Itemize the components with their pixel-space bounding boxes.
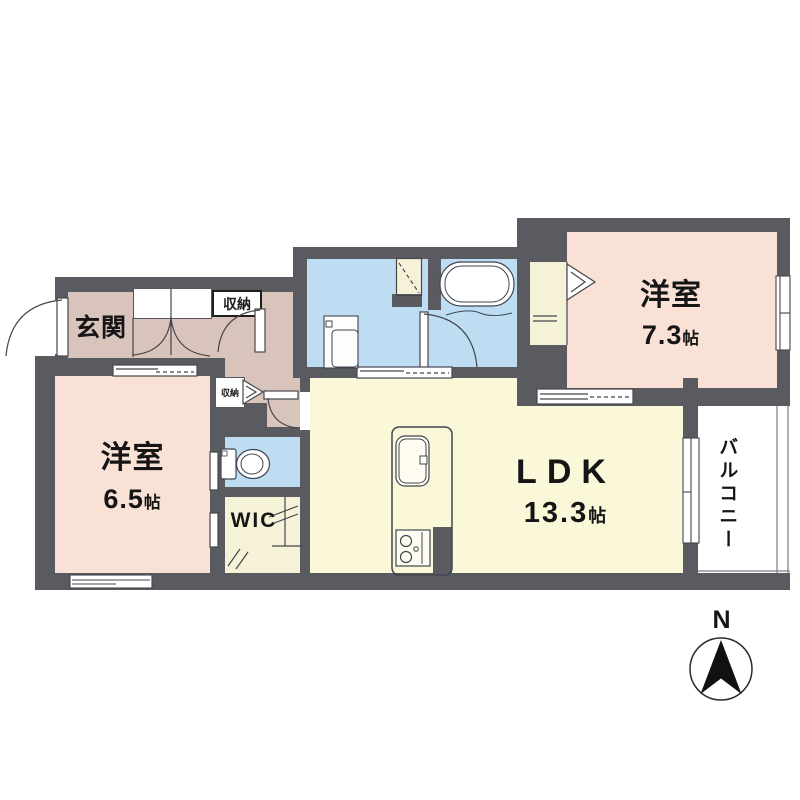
wic-label: WIC [225, 509, 283, 533]
balcony-label: バルコニー [716, 416, 737, 572]
room-size: 7.3帖 [565, 320, 777, 350]
floor-plan: 収納 収納 [0, 0, 800, 800]
compass-north-label: N [702, 606, 742, 634]
wall-segment [683, 378, 698, 578]
bedroom-right-label: 洋室 7.3帖 [565, 279, 777, 350]
room-name: LDK [486, 453, 646, 491]
room-name: 洋室 [55, 441, 210, 476]
room-name: 洋室 [565, 279, 777, 313]
wall-segment [293, 290, 307, 378]
floor-closet-bedroom-right [530, 260, 567, 345]
shoe-cabinet [133, 288, 212, 319]
floor-closet-bath [396, 258, 422, 296]
wall-segment [428, 258, 441, 310]
storage-entrance-box: 収納 [212, 290, 262, 317]
wall-segment [433, 527, 452, 575]
wall-segment [517, 388, 790, 406]
wall-segment [55, 277, 68, 300]
entrance-label: 玄関 [68, 314, 134, 342]
north-arrow-icon [690, 638, 752, 700]
storage-hall-box: 収納 [215, 377, 245, 408]
wall-segment [300, 378, 310, 573]
wall-segment [35, 573, 790, 590]
ldk-label: LDK 13.3帖 [486, 453, 646, 530]
wall-segment [35, 356, 55, 590]
room-size: 6.5帖 [55, 484, 210, 514]
room-size: 13.3帖 [486, 497, 646, 529]
wall-segment [392, 294, 422, 307]
wall-segment [777, 218, 790, 406]
floor-balcony [698, 406, 790, 573]
wall-segment [293, 367, 530, 378]
storage-hall-label: 収納 [221, 386, 239, 399]
wall-segment [540, 218, 790, 232]
floor-bathroom [441, 258, 517, 367]
wall-segment [225, 427, 300, 437]
wall-segment [293, 247, 530, 259]
entry-door [6, 298, 68, 356]
storage-entrance-label: 収納 [223, 294, 251, 314]
wall-segment [530, 345, 567, 388]
floor-toilet [225, 437, 300, 487]
bedroom-left-label: 洋室 6.5帖 [55, 441, 210, 514]
wall-segment [225, 487, 300, 497]
wall-segment [55, 358, 225, 376]
